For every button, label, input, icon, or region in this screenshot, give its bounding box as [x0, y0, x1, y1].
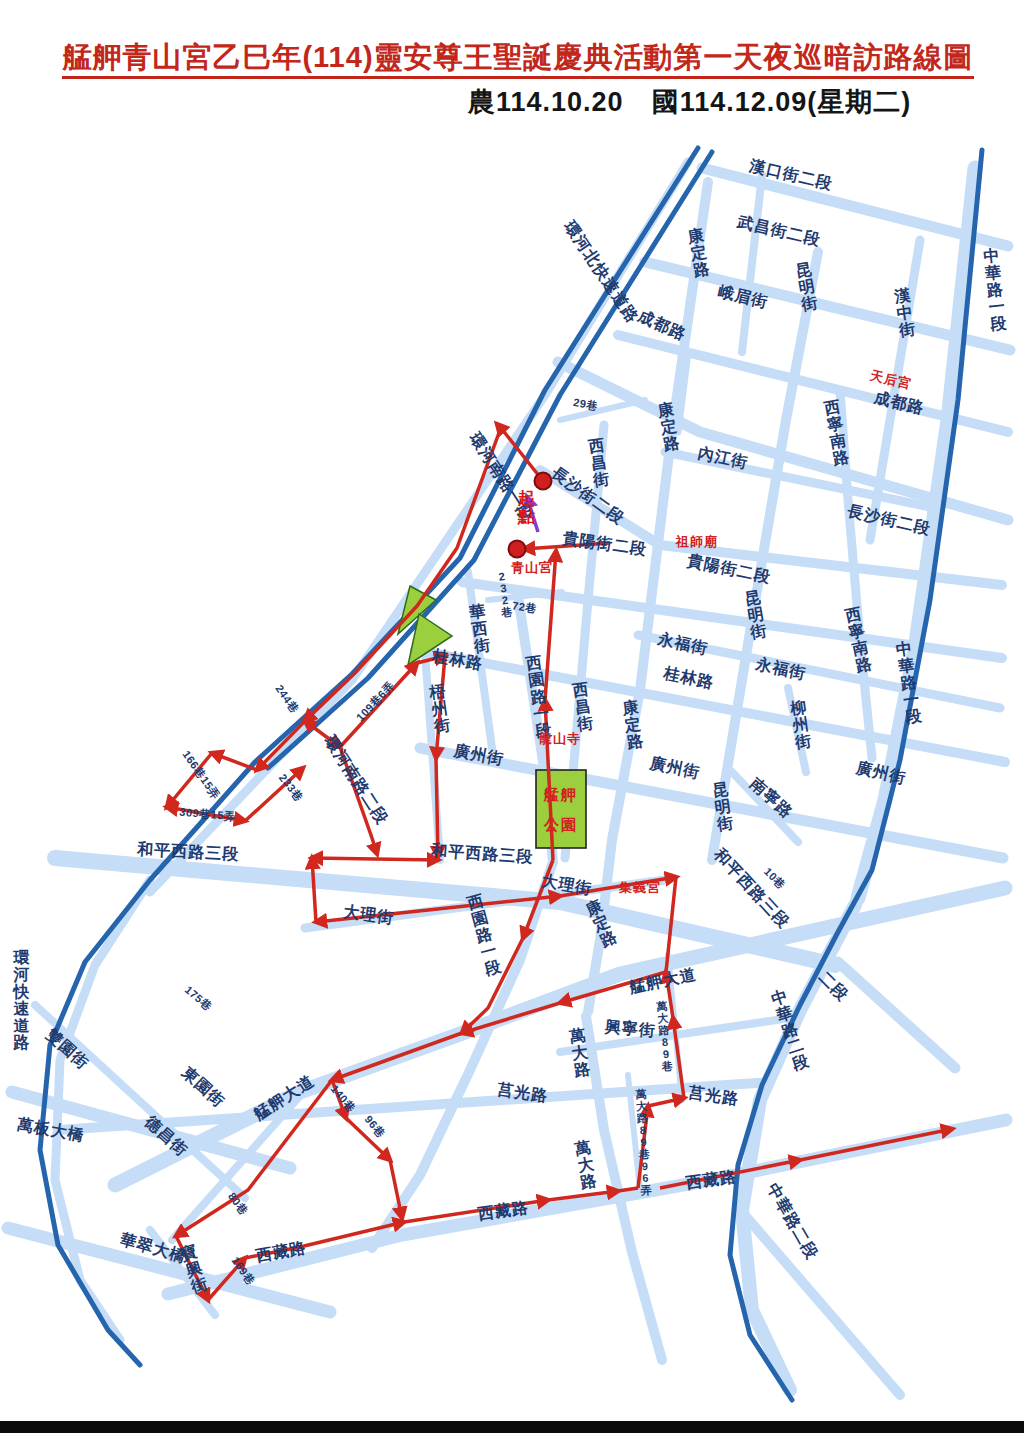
street-label: 武昌街二段: [735, 213, 823, 249]
bottom-bar: [0, 1421, 1024, 1433]
road-line: [115, 888, 1005, 1185]
lane-label: 29巷: [572, 396, 598, 412]
road-line: [742, 1212, 900, 1395]
qingshan-temple-dot: [509, 541, 526, 558]
street-label: 永福街: [753, 654, 808, 682]
route-segment: [332, 1033, 462, 1080]
start-point-dot: [535, 473, 552, 490]
route-segment: [312, 858, 438, 860]
route-segment: [257, 721, 305, 770]
route-map: 艋舺公園 漢口街二段武昌街二段康定路昆明街峨眉街成都路漢中街中華路一段天后宮成都…: [0, 0, 1024, 1433]
street-label: 柳州街: [788, 698, 813, 751]
street-label: 萬大路: [572, 1138, 599, 1191]
street-label: 西藏路: [684, 1167, 738, 1192]
poi-label: 青山宮: [511, 560, 553, 575]
road-line: [742, 175, 762, 352]
route-segment: [212, 753, 257, 770]
street-label: 環河南路二段: [321, 731, 392, 827]
route-segment: [648, 1098, 684, 1106]
lane-label: 10巷: [762, 865, 788, 891]
lane-label: 72巷: [511, 599, 537, 614]
road-line: [372, 596, 553, 1248]
road-line: [838, 962, 955, 1068]
street-label: 中華路一段: [982, 246, 1009, 332]
bangka-park-label: 公園: [543, 816, 578, 833]
route-map-page: 艋舺青山宮乙巳年(114)靈安尊王聖誕慶典活動第一天夜巡暗訪路線圖 農114.1…: [0, 0, 1024, 1433]
poi-label: 龍山寺: [538, 731, 581, 746]
street-label: 興寧街: [603, 1017, 656, 1039]
lane-label: 232巷: [494, 569, 513, 618]
poi-label: 集義宮: [618, 880, 661, 895]
street-label: 廣州街: [647, 754, 701, 781]
street-label: 和平西路三段: [430, 840, 534, 865]
street-label: 華西街: [467, 602, 492, 655]
street-label: 環河快速道路: [12, 949, 31, 1051]
street-label: 長沙街二段: [548, 463, 628, 527]
poi-label: 天后宮: [868, 367, 913, 391]
route-segment: [312, 858, 316, 922]
street-label: 西昌街: [586, 436, 611, 489]
poi-label: 起點: [517, 489, 536, 526]
street-label: 東園街: [178, 1063, 228, 1110]
map-labels: 漢口街二段武昌街二段康定路昆明街峨眉街成都路漢中街中華路一段天后宮成都路西寧南路…: [12, 157, 1009, 1296]
street-label: 康定路: [582, 895, 620, 950]
lane-label: 244巷: [273, 682, 301, 715]
route-segment: [800, 1129, 952, 1160]
street-label: 桂林路: [661, 663, 716, 692]
poi-label: 祖師廟: [675, 534, 718, 549]
street-label: 永福街: [655, 629, 710, 657]
bangka-park: [536, 770, 586, 848]
lane-label: 175巷: [183, 983, 215, 1012]
street-label: 萬板大橋: [15, 1115, 86, 1144]
